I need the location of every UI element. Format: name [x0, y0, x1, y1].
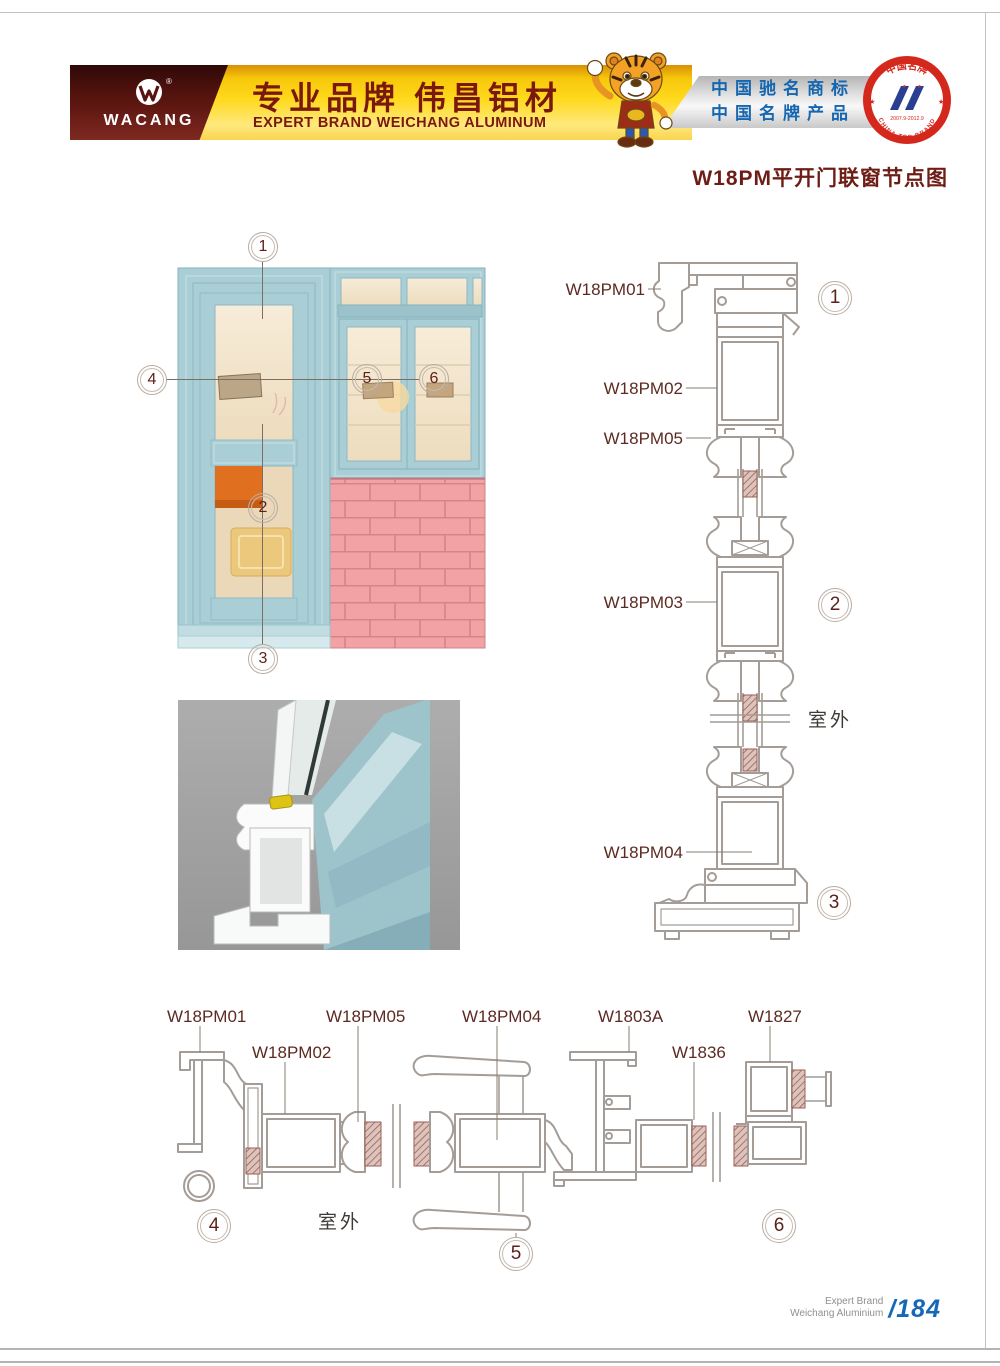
page-title: W18PM平开门联窗节点图 [692, 162, 948, 192]
label-w18pm05-h: W18PM05 [326, 1007, 405, 1026]
badge-dates: 2007.9-2012.9 [890, 116, 924, 122]
svg-text:★: ★ [917, 84, 922, 90]
door-window-illustration [145, 245, 490, 680]
brick-wall [330, 478, 485, 648]
label-w1803a-h: W1803A [598, 1007, 664, 1026]
callout-2: 2 [248, 493, 278, 523]
callout-5: 5 [352, 364, 382, 394]
label-w18pm02-v: W18PM02 [604, 379, 683, 398]
registered-mark: ® [166, 77, 172, 86]
label-w18pm04-v: W18PM04 [604, 843, 683, 862]
page-border-top [0, 12, 1000, 13]
callout-3: 3 [248, 644, 278, 674]
label-w1827-h: W1827 [748, 1007, 802, 1026]
section-circle-6: 6 [762, 1209, 796, 1243]
callout-4: 4 [137, 365, 167, 395]
label-w18pm04-h: W18PM04 [462, 1007, 541, 1026]
wacang-logo-icon: ® [123, 76, 175, 110]
award-bar: 中国驰名商标 中国名牌产品 [663, 76, 891, 128]
door-unit [178, 268, 330, 648]
page-border-bottom-outer [0, 1348, 1000, 1350]
brand-name: WACANG [104, 112, 195, 130]
callout-line-4-6 [167, 379, 420, 380]
label-w18pm01-v: W18PM01 [566, 280, 645, 299]
badge-star-left: ★ [869, 98, 875, 106]
callout-line-1 [262, 262, 263, 319]
section-circle-4: 4 [197, 1209, 231, 1243]
svg-text:★: ★ [902, 84, 907, 90]
banner-subtitle-en: EXPERT BRAND WEICHANG ALUMINUM [253, 115, 546, 131]
page-number: /184 [888, 1299, 941, 1320]
label-w18pm05-v: W18PM05 [604, 429, 683, 448]
label-w18pm01-h: W18PM01 [167, 1007, 246, 1026]
label-w1836-h: W1836 [672, 1043, 726, 1062]
label-w18pm02-h: W18PM02 [252, 1043, 331, 1062]
profile-render-3d [178, 700, 460, 950]
section-circle-1: 1 [818, 281, 852, 315]
badge-star-right: ★ [938, 98, 944, 106]
china-top-brand-badge: 中国名牌 CHINA TOP BRAND ★ ★ ★ ★ 2007.9-2012… [862, 54, 952, 146]
footer-brand-line-1: Expert Brand [790, 1296, 883, 1308]
tiger-mascot [580, 48, 688, 150]
footer-brand-lines: Expert Brand Weichang Aluminium [790, 1296, 883, 1320]
callout-1: 1 [248, 232, 278, 262]
page-border-bottom-inner [0, 1361, 1000, 1363]
banner-title-cn: 专业品牌 伟昌铝材 [252, 73, 562, 119]
section-circle-3: 3 [817, 886, 851, 920]
footer: Expert Brand Weichang Aluminium /184 [790, 1296, 941, 1320]
footer-brand-line-2: Weichang Aluminium [790, 1308, 883, 1320]
section-circle-2: 2 [818, 588, 852, 622]
callout-6: 6 [419, 364, 449, 394]
section-circle-5: 5 [499, 1237, 533, 1271]
page-border-right [985, 12, 986, 1348]
catalog-page: { "header": { "logo": { "brand": "WACANG… [0, 0, 1000, 1366]
callout-line-2 [262, 424, 263, 644]
outdoor-label-v: 室外 [808, 709, 852, 731]
horizontal-profiles [178, 1052, 831, 1230]
vertical-section-drawing: W18PM01 W18PM02 W18PM05 W18PM03 W18PM04 … [555, 255, 965, 960]
outdoor-label-h: 室外 [318, 1211, 362, 1233]
label-w18pm03-v: W18PM03 [604, 593, 683, 612]
